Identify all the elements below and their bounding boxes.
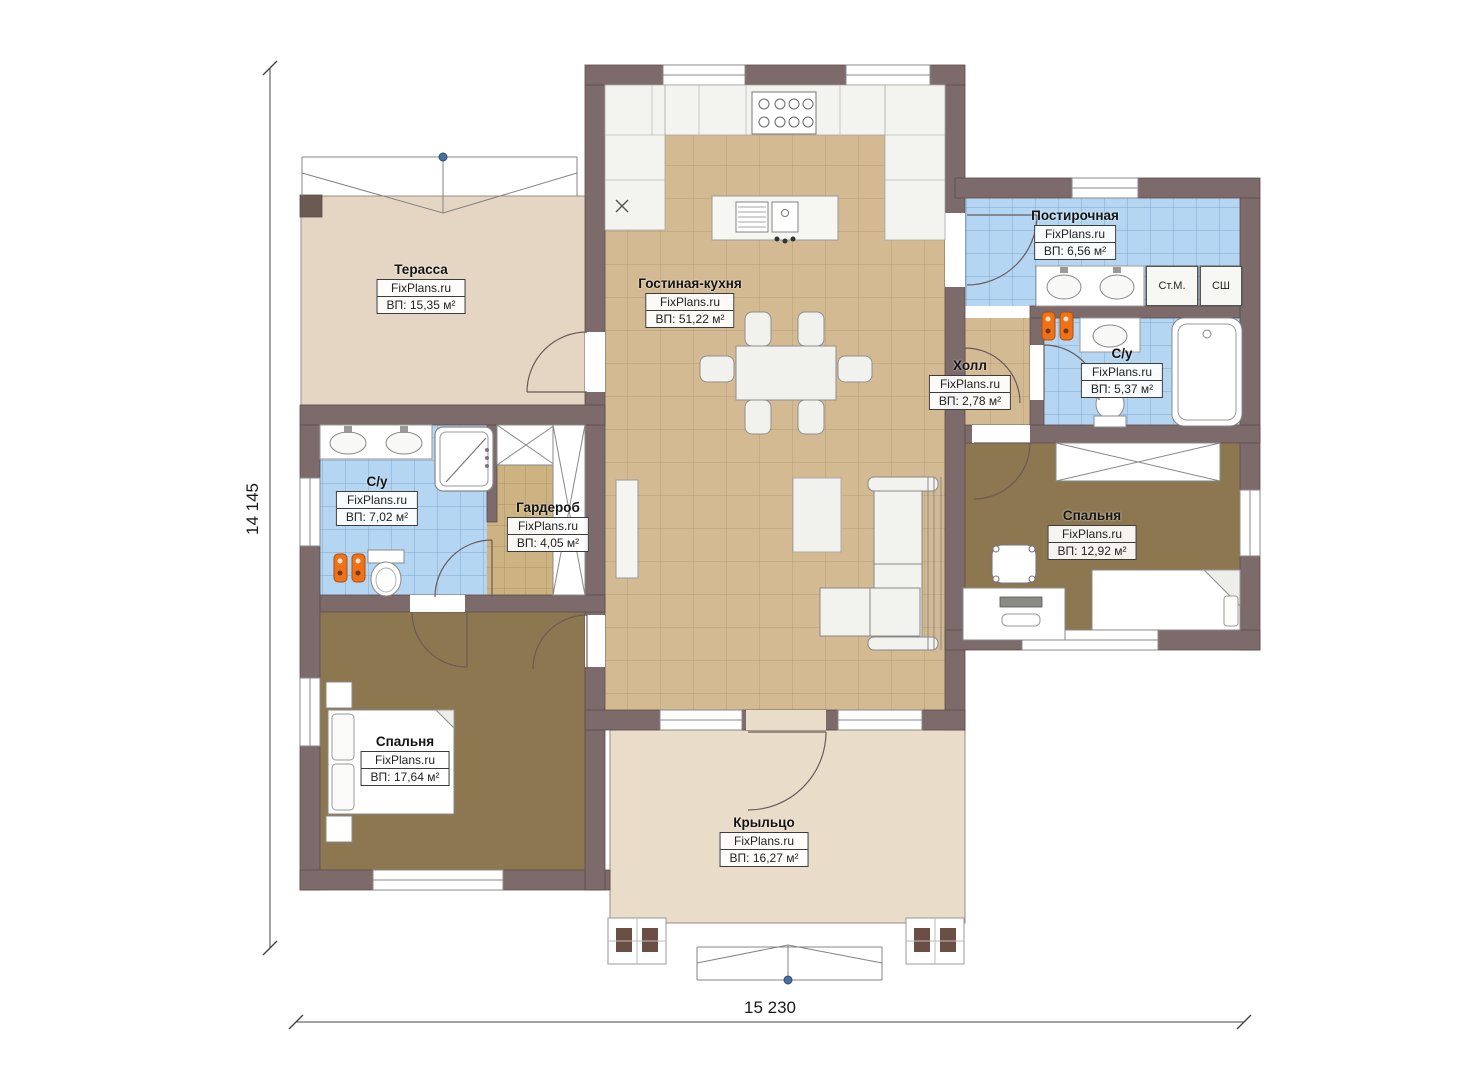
- pillow: [1224, 596, 1238, 626]
- watermark: FixPlans.ru: [362, 752, 449, 769]
- room-label-hall: Холл FixPlans.ru ВП: 2,78 м²: [929, 358, 1011, 410]
- sink: [386, 432, 422, 454]
- step-marker-dot: [784, 976, 792, 984]
- room-name: С/у: [336, 474, 418, 489]
- toilet: [368, 550, 404, 596]
- watermark: FixPlans.ru: [721, 833, 808, 850]
- monitor: [1000, 597, 1042, 607]
- dimension-left: 14 145: [243, 469, 263, 549]
- room-label-bedroom-right: Спальня FixPlans.ru ВП: 12,92 м²: [1048, 508, 1137, 560]
- shower: [435, 427, 493, 491]
- floor-plan-page: Терасса FixPlans.ru ВП: 15,35 м² Гостина…: [0, 0, 1474, 1080]
- room-name: Терасса: [377, 262, 466, 277]
- room-label-bedroom-left: Спальня FixPlans.ru ВП: 17,64 м²: [361, 734, 450, 786]
- watermark: FixPlans.ru: [337, 492, 417, 509]
- room-area: ВП: 15,35 м²: [378, 297, 465, 313]
- nightstand: [326, 816, 352, 842]
- room-label-laundry: Постирочная FixPlans.ru ВП: 6,56 м²: [1031, 208, 1119, 260]
- wardrobe: [1056, 443, 1220, 481]
- room-label-bathroom-left: С/у FixPlans.ru ВП: 7,02 м²: [336, 474, 418, 526]
- room-label-terrace: Терасса FixPlans.ru ВП: 15,35 м²: [377, 262, 466, 314]
- room-area: ВП: 5,37 м²: [1082, 381, 1162, 397]
- stove: [752, 92, 816, 134]
- sink: [1093, 325, 1127, 347]
- watermark: FixPlans.ru: [647, 294, 734, 311]
- room-name: Холл: [929, 358, 1011, 373]
- room-area: ВП: 2,78 м²: [930, 393, 1010, 409]
- room-area: ВП: 12,92 м²: [1049, 543, 1136, 559]
- room-area: ВП: 7,02 м²: [337, 509, 417, 525]
- armchair: [992, 545, 1036, 583]
- porch-steps: [697, 945, 882, 984]
- laundry-sink: [1047, 275, 1081, 299]
- watermark: FixPlans.ru: [1049, 526, 1136, 543]
- sink: [330, 432, 366, 454]
- room-name: Спальня: [361, 734, 450, 749]
- room-area: ВП: 6,56 м²: [1035, 243, 1115, 259]
- room-label-living-kitchen: Гостиная-кухня FixPlans.ru ВП: 51,22 м²: [638, 276, 741, 328]
- watermark: FixPlans.ru: [1035, 226, 1115, 243]
- watermark: FixPlans.ru: [378, 280, 465, 297]
- room-label-wardrobe-room: Гардероб FixPlans.ru ВП: 4,05 м²: [507, 500, 589, 552]
- room-name: Постирочная: [1031, 208, 1119, 223]
- bathtub: [1172, 318, 1242, 426]
- room-name: Гостиная-кухня: [638, 276, 741, 291]
- room-area: ВП: 16,27 м²: [721, 850, 808, 866]
- room-area: ВП: 4,05 м²: [508, 535, 588, 551]
- tv-stand: [616, 480, 638, 578]
- room-label-bathroom-right: С/у FixPlans.ru ВП: 5,37 м²: [1081, 346, 1163, 398]
- dimension-bottom: 15 230: [695, 998, 845, 1018]
- watermark: FixPlans.ru: [1082, 364, 1162, 381]
- watermark: FixPlans.ru: [930, 376, 1010, 393]
- pillow: [332, 714, 354, 760]
- coffee-table: [793, 478, 841, 552]
- bed: [1092, 570, 1240, 630]
- room-name: Спальня: [1048, 508, 1137, 523]
- laundry-sink: [1100, 275, 1134, 299]
- watermark: FixPlans.ru: [508, 518, 588, 535]
- step-marker-dot: [439, 153, 447, 161]
- room-area: ВП: 17,64 м²: [362, 769, 449, 785]
- room-name: Крыльцо: [720, 815, 809, 830]
- floor-plan-canvas: [0, 0, 1474, 1080]
- room-area: ВП: 51,22 м²: [647, 311, 734, 327]
- dryer-label: СШ: [1200, 266, 1242, 306]
- keyboard: [1002, 614, 1040, 626]
- nightstand: [326, 682, 352, 708]
- dining-table: [736, 346, 836, 400]
- terrace-column: [300, 195, 322, 217]
- porch-columns: [608, 918, 964, 964]
- washing-machine-label: Ст.М.: [1146, 266, 1198, 306]
- pillow: [332, 764, 354, 810]
- room-name: Гардероб: [507, 500, 589, 515]
- room-label-porch: Крыльцо FixPlans.ru ВП: 16,27 м²: [720, 815, 809, 867]
- room-name: С/у: [1081, 346, 1163, 361]
- desk: [963, 588, 1065, 640]
